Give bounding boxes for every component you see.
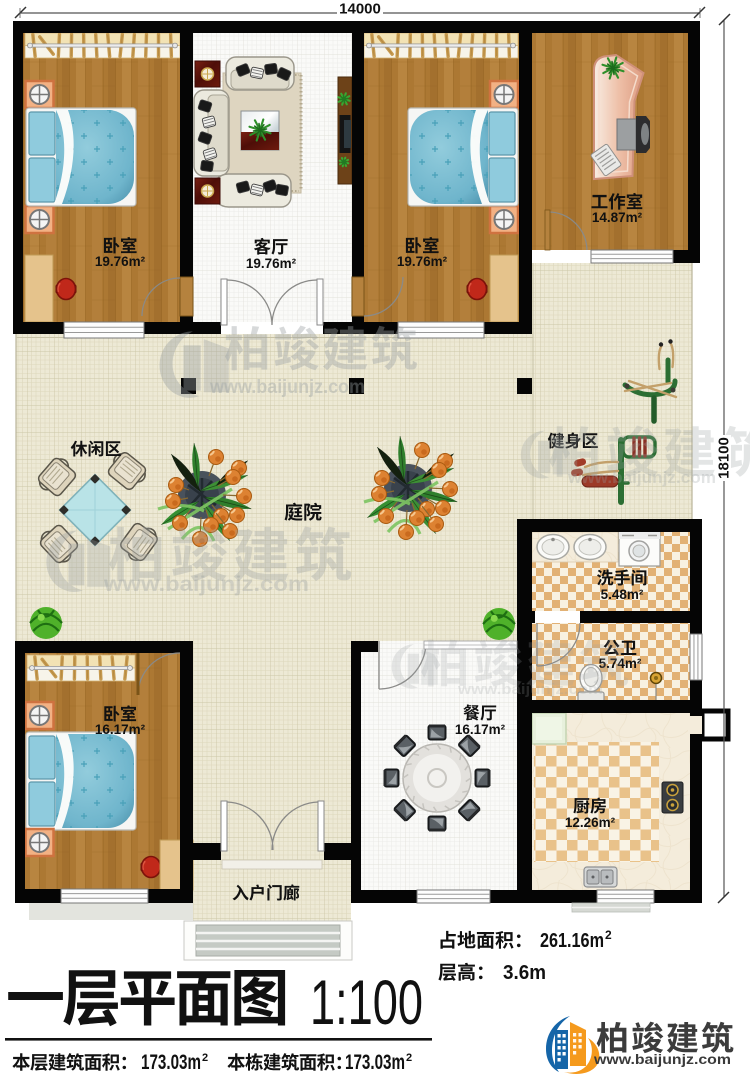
svg-text:19.76m²: 19.76m² — [397, 254, 448, 269]
svg-text:173.03m: 173.03m — [141, 1051, 201, 1074]
svg-text:2: 2 — [406, 1052, 412, 1064]
svg-text:www.baijunjz.com: www.baijunjz.com — [103, 573, 309, 596]
svg-text:www.baijunjz.com: www.baijunjz.com — [567, 468, 716, 487]
svg-text:16.17m²: 16.17m² — [455, 722, 506, 737]
svg-text:www.baijunjz.com: www.baijunjz.com — [593, 1051, 731, 1067]
svg-text:3.6m: 3.6m — [503, 962, 546, 984]
svg-text:14000: 14000 — [339, 1, 381, 18]
svg-text:12.26m²: 12.26m² — [565, 815, 616, 830]
svg-text:2: 2 — [202, 1052, 208, 1064]
svg-text:5.48m²: 5.48m² — [601, 587, 644, 602]
svg-text:1:100: 1:100 — [310, 968, 423, 1038]
svg-text:2: 2 — [605, 928, 612, 942]
svg-text:19.76m²: 19.76m² — [95, 254, 146, 269]
svg-text:18100: 18100 — [716, 437, 733, 479]
svg-text:19.76m²: 19.76m² — [246, 256, 297, 271]
svg-text:www.baijunjz.com: www.baijunjz.com — [209, 377, 365, 398]
svg-text:173.03m: 173.03m — [345, 1051, 405, 1074]
svg-text:261.16m: 261.16m — [540, 930, 604, 952]
svg-text:www.baijunjz.com: www.baijunjz.com — [457, 681, 603, 698]
svg-text:14.87m²: 14.87m² — [592, 210, 643, 225]
svg-text:16.17m²: 16.17m² — [95, 722, 146, 737]
